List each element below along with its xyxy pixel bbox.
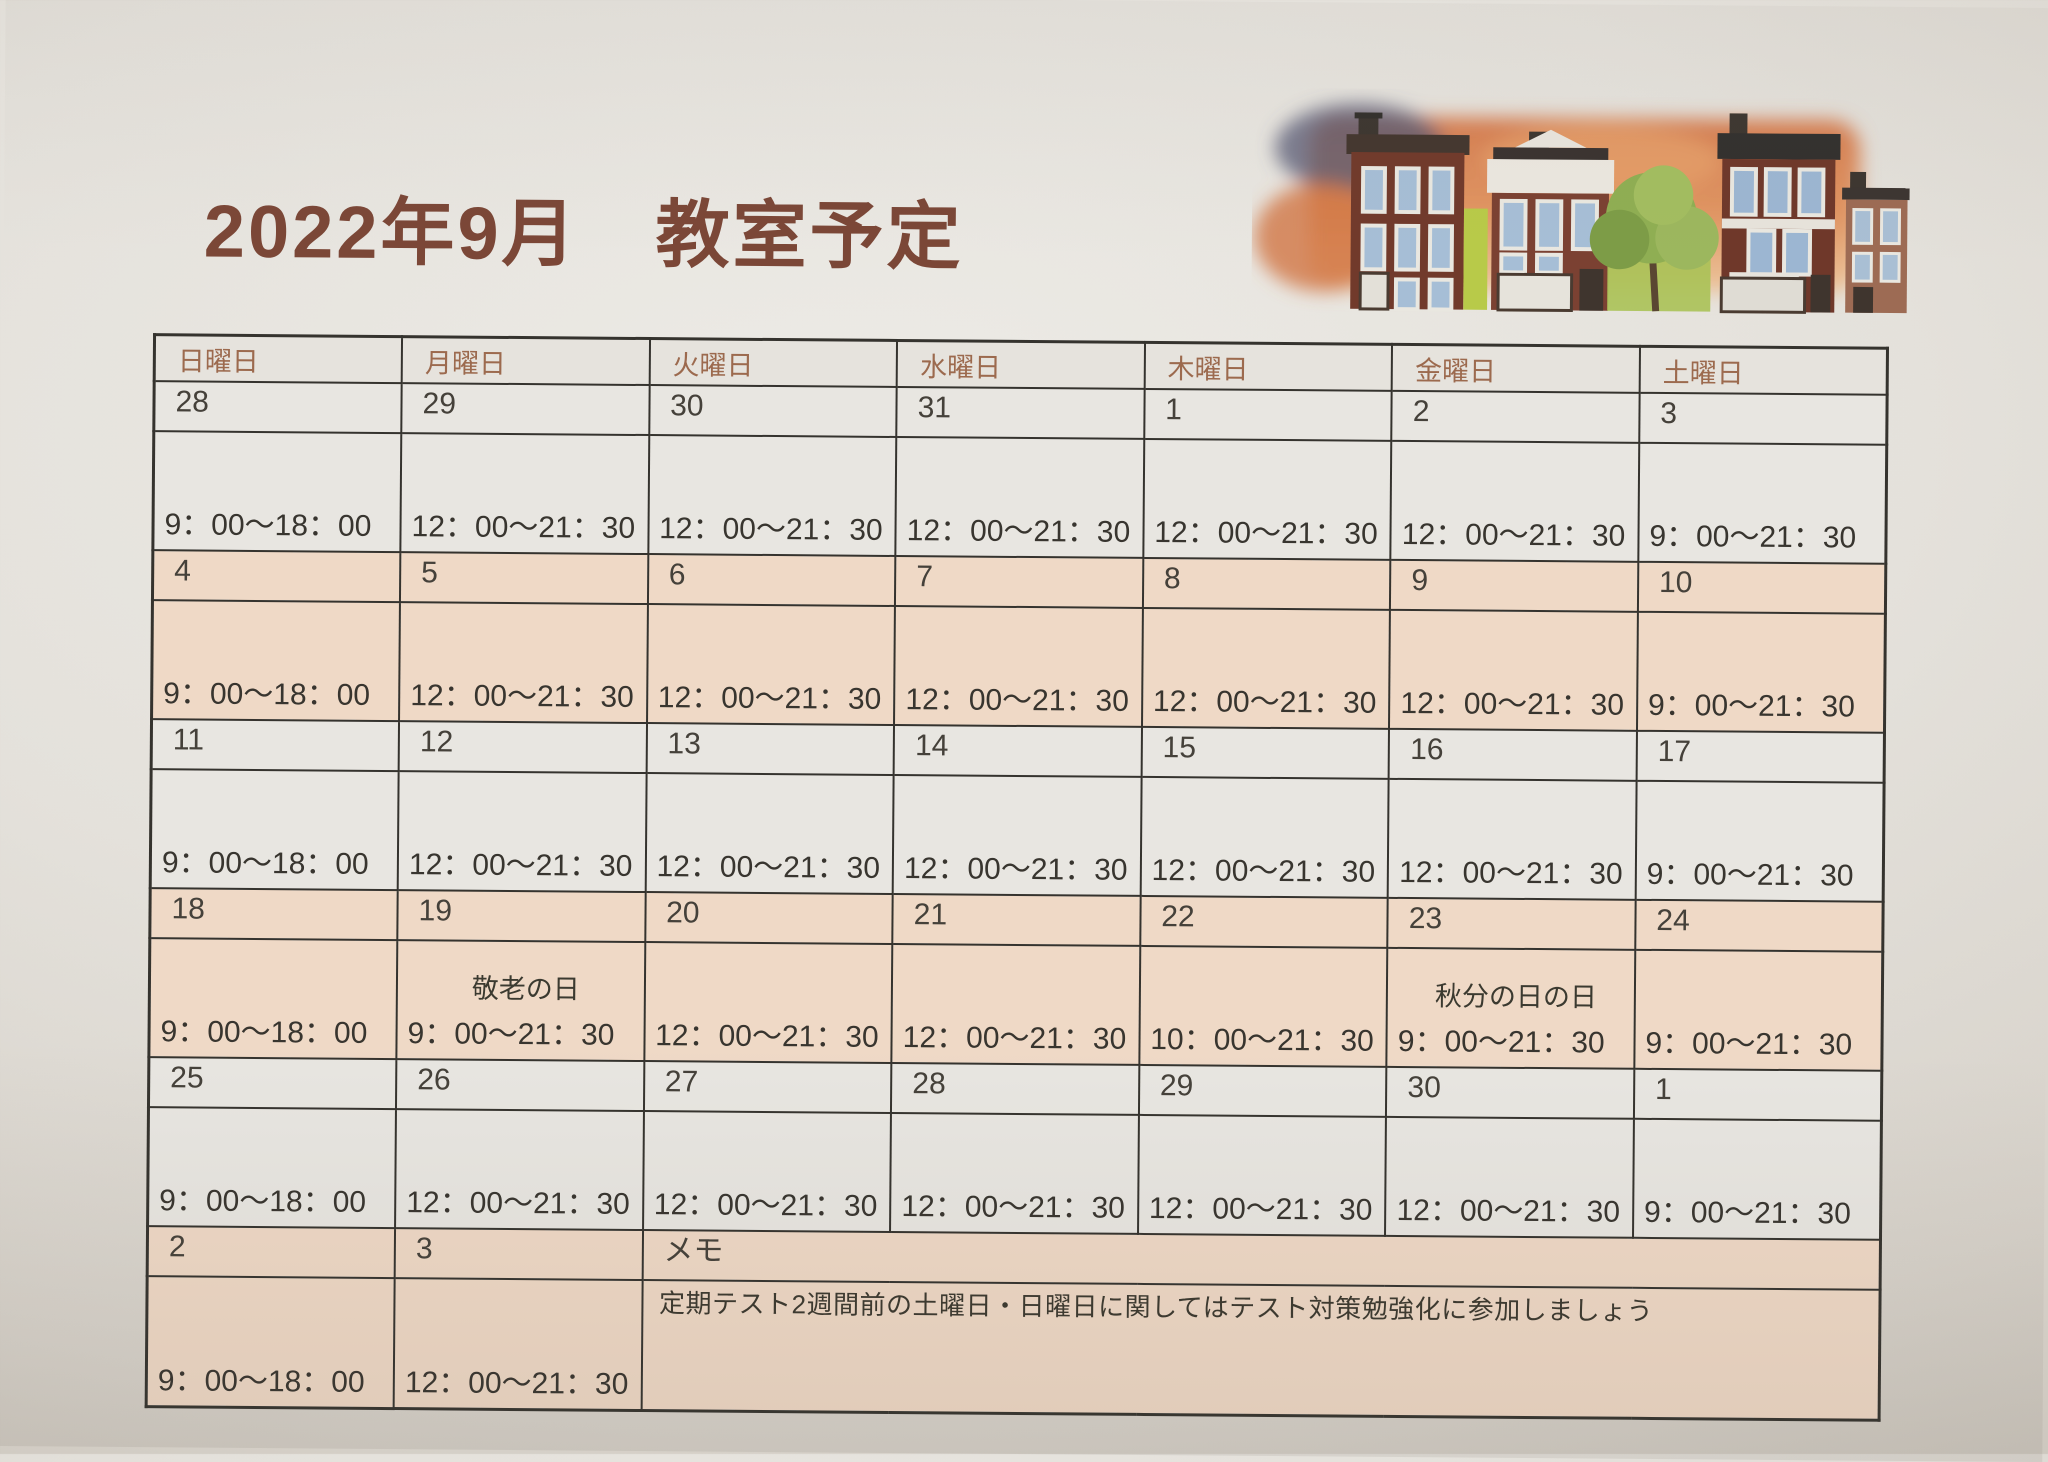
time-cell: 9：00～18：00 (146, 1276, 395, 1408)
holiday-date-cell: 19 (397, 890, 645, 942)
time-cell: 10：00～21：30 (1139, 946, 1387, 1067)
week2-time-row: 9：00～18：00 12：00～21：30 12：00～21：30 12：00… (152, 600, 1886, 733)
week6-time-row: 9：00～18：00 12：00～21：30 定期テスト2週間前の土曜日・日曜日… (146, 1276, 1880, 1420)
brick-building-icon (1345, 112, 1470, 309)
time-cell: 9：00～21：30 (1634, 950, 1883, 1071)
day-header-sunday: 日曜日 (154, 335, 402, 383)
date-cell: 30 (649, 385, 897, 437)
date-cell: 12 (399, 721, 647, 773)
brick-building-icon (1716, 113, 1841, 312)
time-cell: 12：00～21：30 (398, 771, 646, 892)
time-cell: 9：00～21：30 (1637, 612, 1886, 733)
townhouses-illustration (1251, 88, 1913, 341)
light-brick-building-icon (1841, 172, 1910, 313)
photographed-schedule-sheet: 2022年9月 教室予定 (0, 0, 2048, 1462)
date-cell: 6 (648, 554, 896, 606)
time-cell: 12：00～21：30 (894, 606, 1142, 727)
time-cell: 12：00～21：30 (400, 433, 648, 554)
holiday-label: 敬老の日 (408, 974, 644, 1007)
hedge-icon (1463, 208, 1488, 309)
date-cell: 10 (1638, 562, 1886, 614)
time-cell: 12：00～21：30 (648, 435, 896, 556)
day-header-saturday: 土曜日 (1640, 346, 1888, 394)
holiday-time-cell: 敬老の日 9：00～21：30 (396, 940, 644, 1061)
time-cell: 12：00～21：30 (395, 1109, 643, 1230)
calendar-table: 日曜日 月曜日 火曜日 水曜日 木曜日 金曜日 土曜日 28 29 30 31 … (145, 333, 1889, 1422)
time-cell: 9：00～18：00 (152, 600, 400, 721)
date-cell: 13 (646, 723, 894, 775)
holiday-time-cell: 秋分の日の日 9：00～21：30 (1387, 948, 1635, 1069)
date-cell: 2 (1392, 391, 1640, 443)
time-cell: 12：00～21：30 (1142, 608, 1390, 729)
date-cell: 7 (895, 556, 1143, 608)
date-cell: 16 (1389, 729, 1637, 781)
time-cell: 9：00～18：00 (153, 431, 401, 552)
time-cell: 12：00～21：30 (1138, 1115, 1386, 1236)
time-cell: 9：00～18：00 (149, 938, 397, 1059)
time-cell: 12：00～21：30 (1389, 610, 1637, 731)
date-cell: 1 (1144, 389, 1392, 441)
date-cell: 3 (395, 1228, 643, 1280)
date-cell: 1 (1634, 1069, 1882, 1121)
time-cell: 12：00～21：30 (645, 773, 893, 894)
time-cell: 12：00～21：30 (643, 1111, 891, 1232)
date-cell: 25 (148, 1057, 396, 1109)
date-cell: 26 (396, 1059, 644, 1111)
date-cell: 18 (150, 888, 398, 940)
memo-note-cell: 定期テスト2週間前の土曜日・日曜日に関してはテスト対策勉強化に参加しましょう (641, 1280, 1880, 1420)
time-cell: 12：00～21：30 (890, 1113, 1138, 1234)
week1-time-row: 9：00～18：00 12：00～21：30 12：00～21：30 12：00… (153, 431, 1887, 564)
day-header-tuesday: 火曜日 (649, 339, 897, 387)
date-cell: 9 (1390, 560, 1638, 612)
date-cell: 28 (154, 381, 402, 433)
day-header-friday: 金曜日 (1392, 344, 1640, 392)
time-cell: 12：00～21：30 (1140, 777, 1388, 898)
holiday-date-cell: 23 (1388, 898, 1636, 950)
time-cell: 12：00～21：30 (394, 1278, 643, 1410)
date-cell: 22 (1140, 896, 1388, 948)
time-cell: 12：00～21：30 (1143, 439, 1391, 560)
week3-time-row: 9：00～18：00 12：00～21：30 12：00～21：30 12：00… (150, 769, 1884, 902)
date-cell: 15 (1141, 727, 1389, 779)
time-cell: 9：00～21：30 (1638, 443, 1887, 564)
date-cell: 29 (401, 383, 649, 435)
holiday-time: 9：00～21：30 (407, 1017, 643, 1053)
date-cell: 24 (1635, 900, 1883, 952)
date-cell: 31 (896, 387, 1144, 439)
date-cell: 20 (645, 892, 893, 944)
date-cell: 27 (644, 1061, 892, 1113)
date-cell: 30 (1386, 1067, 1634, 1119)
date-cell: 5 (400, 552, 648, 604)
date-cell: 11 (151, 719, 399, 771)
date-cell: 4 (152, 550, 400, 602)
time-cell: 12：00～21：30 (399, 602, 647, 723)
time-cell: 12：00～21：30 (1385, 1117, 1633, 1238)
time-cell: 12：00～21：30 (893, 775, 1141, 896)
page-title: 2022年9月 教室予定 (203, 172, 964, 285)
date-cell: 14 (894, 725, 1142, 777)
time-cell: 9：00～21：30 (1636, 781, 1885, 902)
time-cell: 12：00～21：30 (647, 604, 895, 725)
date-cell: 28 (891, 1063, 1139, 1115)
date-cell: 2 (147, 1226, 395, 1278)
time-cell: 12：00～21：30 (896, 437, 1144, 558)
time-cell: 9：00～18：00 (148, 1107, 396, 1228)
time-cell: 12：00～21：30 (892, 944, 1140, 1065)
time-cell: 12：00～21：30 (1388, 779, 1636, 900)
date-cell: 8 (1143, 558, 1391, 610)
week5-time-row: 9：00～18：00 12：00～21：30 12：00～21：30 12：00… (148, 1107, 1882, 1240)
time-cell: 12：00～21：30 (1391, 441, 1639, 562)
time-cell: 9：00～18：00 (150, 769, 398, 890)
date-cell: 17 (1636, 731, 1884, 783)
holiday-label: 秋分の日の日 (1398, 981, 1634, 1014)
time-cell: 9：00～21：30 (1633, 1119, 1882, 1240)
day-header-thursday: 木曜日 (1144, 342, 1392, 390)
week4-time-row: 9：00～18：00 敬老の日 9：00～21：30 12：00～21：30 1… (149, 938, 1883, 1071)
day-header-monday: 月曜日 (402, 337, 650, 385)
time-cell: 12：00～21：30 (644, 942, 892, 1063)
day-header-wednesday: 水曜日 (897, 340, 1145, 388)
date-cell: 29 (1139, 1065, 1387, 1117)
white-trim-building-icon (1486, 129, 1614, 311)
holiday-time: 9：00～21：30 (1398, 1024, 1634, 1060)
date-cell: 3 (1639, 393, 1887, 445)
date-cell: 21 (892, 894, 1140, 946)
